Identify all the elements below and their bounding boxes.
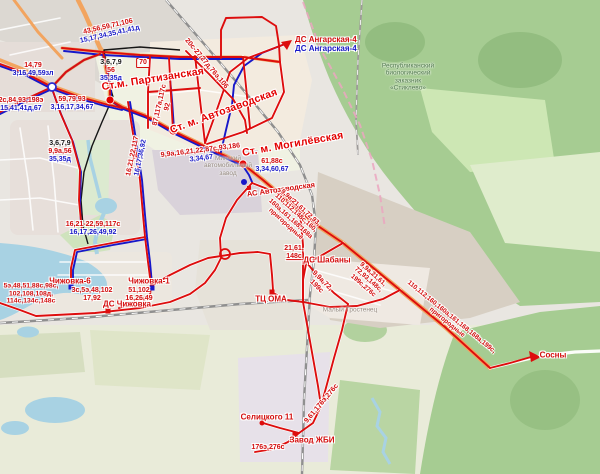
bus-routes-text: 51,102 <box>125 287 152 295</box>
terminal-label-sosny[interactable]: Сосны <box>540 350 567 359</box>
bus-routes-text: 3с,5э,48,102 <box>72 287 113 295</box>
bus-routes-text: 16,21-22,59,117с <box>66 221 121 229</box>
trolleybus-routes-text: 3,16,49,59зл <box>13 70 54 78</box>
bus-routes-text: 56 <box>100 67 122 75</box>
tram-routes-text: 3,6,7,9 <box>48 140 71 148</box>
terminal-label-chizhovka1[interactable]: Чижовка-1 <box>128 276 169 285</box>
terminal-label-ds-shabany[interactable]: ДС Шабаны <box>303 255 350 264</box>
bus-routes-text: 114с,134с,148с <box>4 298 59 306</box>
route-label-shabany-junction: 21,61, 148с <box>284 245 303 261</box>
route-label-chizhovka-road: 16,21-22,59,117с 16,17,26,49,92 <box>66 221 121 237</box>
terminal-label-zavod-zhbi[interactable]: Завод ЖБИ <box>289 435 334 444</box>
terminal-label-ds-angarskaya[interactable]: ДС Ангарская-4 ДС Ангарская-4 <box>295 35 357 53</box>
bus-routes-text: 14,79 <box>13 62 54 70</box>
trolleybus-routes-text: 3,34,60,67 <box>255 166 288 174</box>
bus-routes-text: 5э,48,51,88с,98с, <box>4 282 59 290</box>
trolleybus-routes-text: 3,16,17,34,67 <box>51 104 94 112</box>
route-label-chizhovka-west: 5э,48,51,88с,98с, 102,108,108д, 114с,134… <box>4 282 59 305</box>
transit-map-canvas[interactable]: 43,56,59,71,106 15,17,34,35,41,41д 14,79… <box>0 0 600 474</box>
route-label-mogilevskaya-south: 61,88с 3,34,60,67 <box>255 158 288 174</box>
terminal-label-tc-oma[interactable]: ТЦ ОМА <box>255 294 287 303</box>
tram-routes-text: 3,6,7,9 <box>100 59 122 67</box>
ds-chizhovka-marker[interactable] <box>106 309 111 314</box>
place-label-zakaznik: Республиканский биологический заказник «… <box>382 62 434 91</box>
place-label-line: автомобильный <box>204 162 252 169</box>
bus-routes-text: 59,79,93 <box>51 96 94 104</box>
route-label-west-lower: 2с,84,93,198э 15,41,41д,67 <box>0 97 43 113</box>
route-label-zhbi-south: 176э,276с <box>251 444 284 452</box>
terminal-label-selitskogo[interactable]: Селицкого 11 <box>241 412 294 421</box>
bus-routes-text: 148с <box>284 253 303 261</box>
route-70-badge: 70 <box>136 58 150 68</box>
place-label-line: заказник <box>382 77 434 84</box>
bus-routes-text: 61,88с <box>255 158 288 166</box>
bus-routes-text: 21,61, <box>284 245 303 253</box>
place-label-maz: Минский автомобильный завод <box>204 155 252 177</box>
place-label-line: биологический <box>382 70 434 77</box>
place-label-line: завод <box>204 170 252 177</box>
bus-routes-text: 9,9а,56 <box>48 148 71 156</box>
bus-routes-text: 2с,84,93,198э <box>0 97 43 105</box>
trolleybus-routes-text: 35,35д <box>48 156 71 164</box>
metro-partizanskaya-marker[interactable] <box>106 96 114 104</box>
junction-circle-icon <box>48 83 56 91</box>
route-label-serebryanka: 3,6,7,9 9,9а,56 35,35д <box>48 140 71 164</box>
route-label-junction-east: 59,79,93 3,16,17,34,67 <box>51 96 94 112</box>
ds-angarskaya-trolley-text: ДС Ангарская-4 <box>295 44 357 53</box>
trolleybus-routes-text: 16,17,26,49,92 <box>66 229 121 237</box>
as-avtozavodskaya-trolley-marker[interactable] <box>241 179 247 185</box>
route-label-west-upper: 14,79 3,16,49,59зл <box>13 62 54 78</box>
terminal-label-ds-chizhovka[interactable]: ДС Чижовка <box>103 299 151 308</box>
trolleybus-routes-text: 15,41,41д,67 <box>0 105 43 113</box>
place-label-line: «Стиклево» <box>382 84 434 91</box>
ds-angarskaya-bus-text: ДС Ангарская-4 <box>295 35 357 44</box>
place-label-trostenets: Малый Тростенец <box>323 306 378 313</box>
